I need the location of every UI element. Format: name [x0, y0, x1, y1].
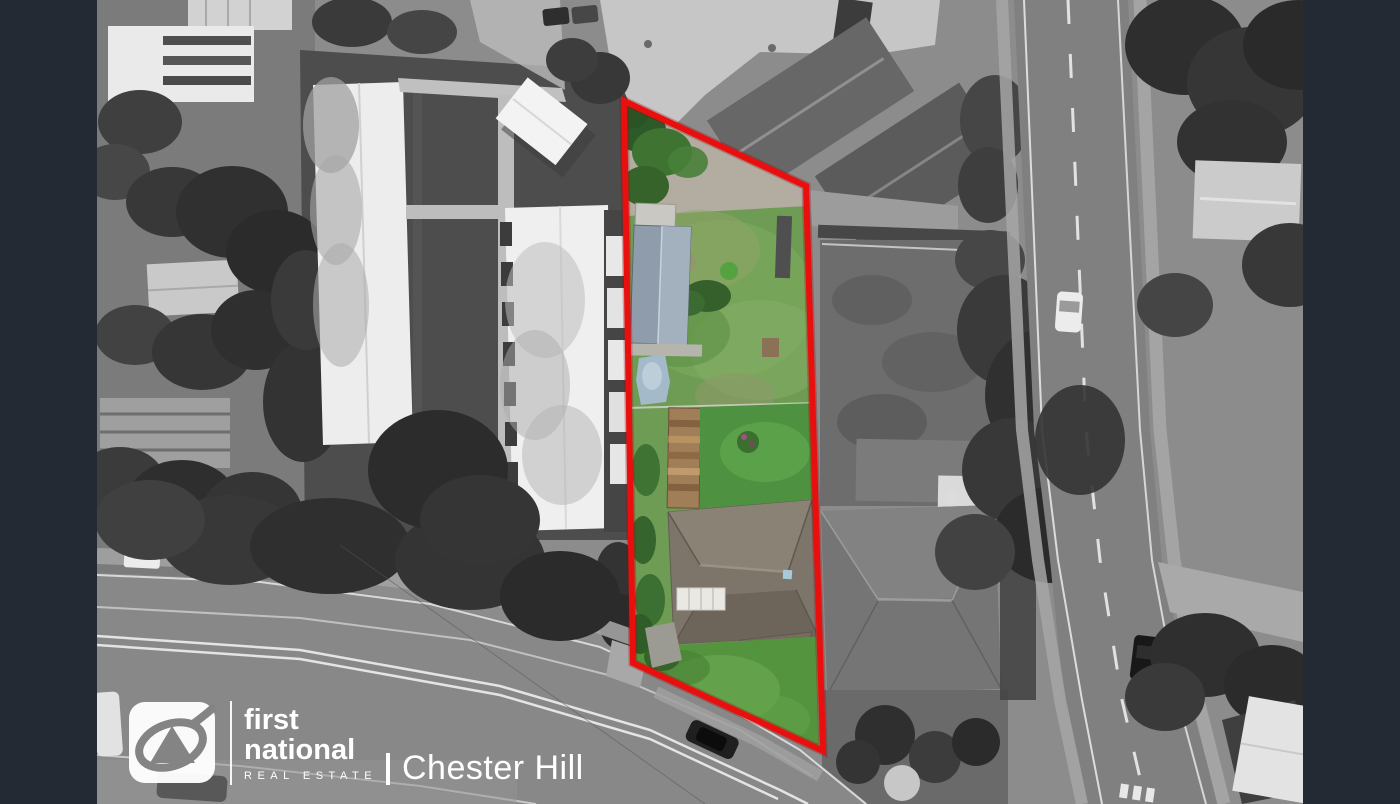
parked-car — [571, 5, 599, 25]
satellite-dish — [944, 489, 960, 505]
aerial-photo — [0, 0, 1400, 804]
white-car — [1055, 291, 1084, 333]
brand-tagline: REAL ESTATE — [244, 770, 377, 782]
office-name: Chester Hill — [402, 749, 584, 788]
property-color-area — [612, 95, 830, 757]
brand-wordmark: first national REAL ESTATE — [244, 705, 377, 782]
logo-divider-line — [230, 701, 232, 785]
screenshot-stage: first national REAL ESTATE Chester Hill — [0, 0, 1400, 804]
apartment-block-2 — [500, 205, 616, 531]
rusty-carport — [667, 408, 701, 509]
watermark: first national REAL ESTATE Chester Hill — [129, 700, 659, 790]
brand-word-first: first — [244, 705, 377, 735]
parked-car — [542, 7, 570, 27]
brand-word-national: national — [244, 735, 377, 766]
first-national-logo-icon — [129, 702, 215, 783]
garden-bench — [762, 338, 779, 357]
back-lawn — [700, 403, 820, 510]
office-divider-bar — [386, 753, 390, 785]
clothesline — [775, 216, 792, 278]
